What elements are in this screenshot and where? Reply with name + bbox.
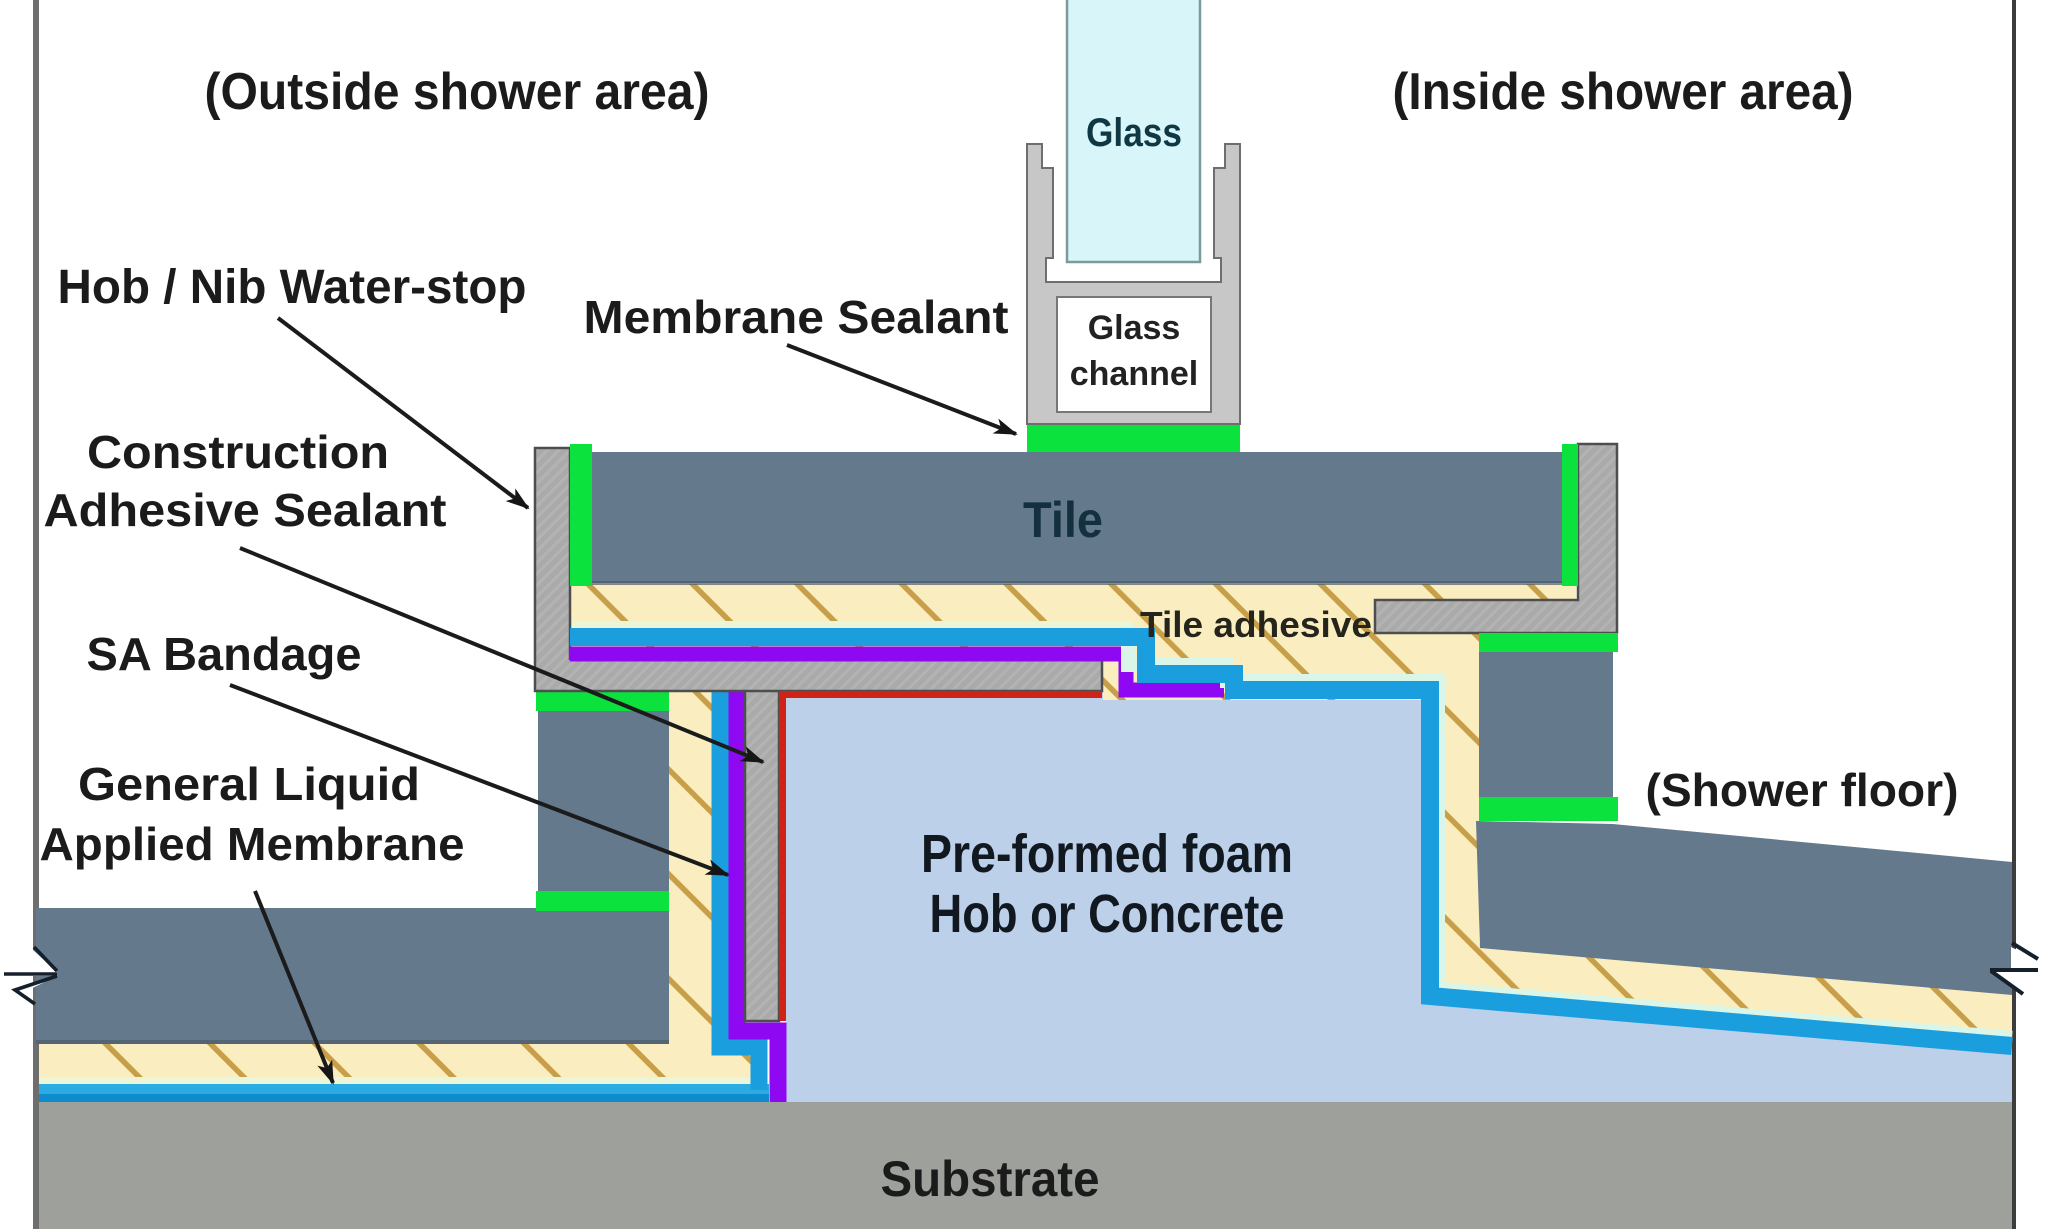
svg-text:Hob / Nib Water-stop: Hob / Nib Water-stop [58,261,527,314]
svg-text:Pre-formed foam: Pre-formed foam [921,824,1293,884]
svg-text:(Shower floor): (Shower floor) [1646,764,1959,816]
svg-text:General Liquid: General Liquid [78,758,420,810]
svg-text:(Outside shower area): (Outside shower area) [205,63,710,121]
svg-text:channel: channel [1070,355,1198,393]
svg-text:Substrate: Substrate [881,1151,1100,1207]
svg-text:Tile: Tile [1023,492,1103,548]
svg-text:Applied Membrane: Applied Membrane [40,818,465,870]
svg-text:Adhesive Sealant: Adhesive Sealant [44,484,447,536]
svg-text:Tile adhesive: Tile adhesive [1140,604,1372,645]
svg-text:SA Bandage: SA Bandage [87,628,362,680]
svg-text:Glass: Glass [1086,111,1182,155]
svg-text:(Inside shower area): (Inside shower area) [1393,63,1854,121]
svg-text:Construction: Construction [87,426,389,478]
svg-text:Membrane Sealant: Membrane Sealant [584,291,1009,343]
svg-text:Glass: Glass [1088,309,1181,347]
svg-text:Hob or Concrete: Hob or Concrete [930,884,1285,944]
